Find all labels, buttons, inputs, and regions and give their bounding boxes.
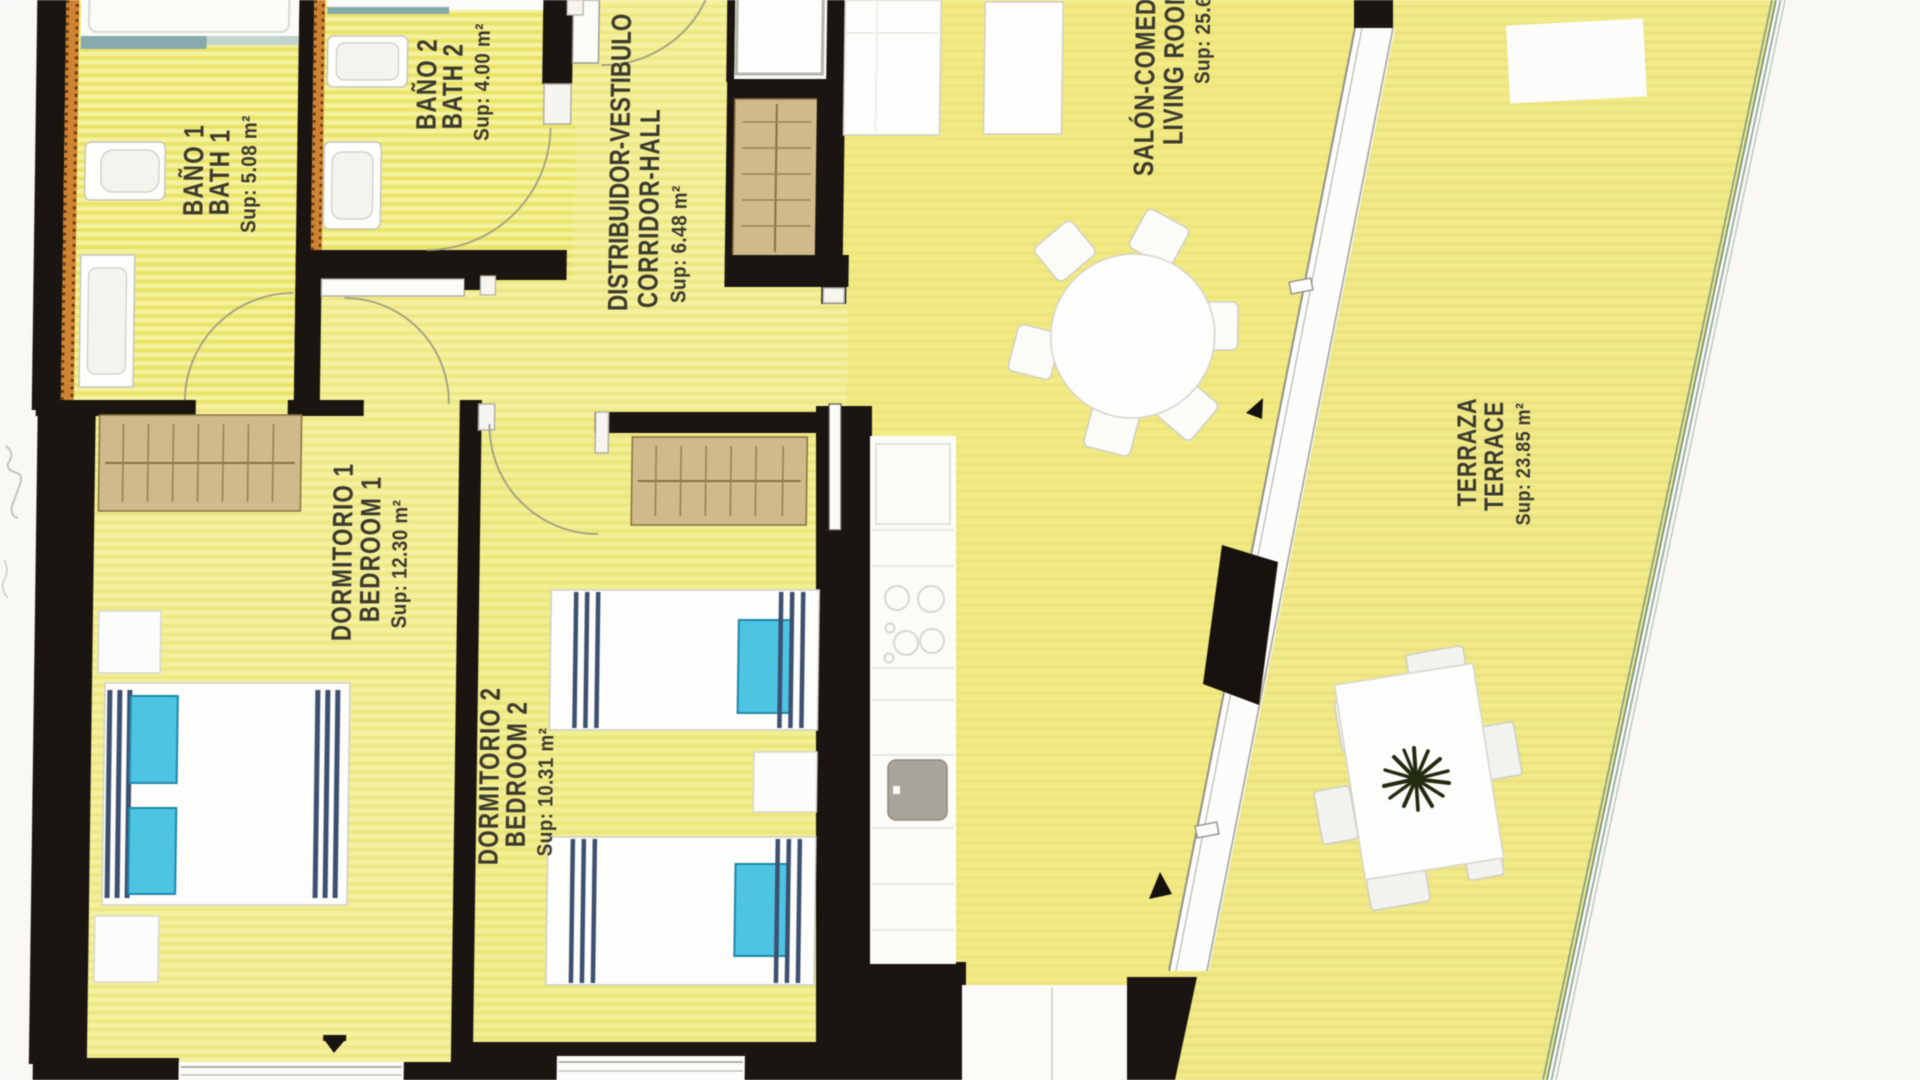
svg-text:BEDROOM 2: BEDROOM 2	[500, 701, 533, 847]
svg-text:Sup: 12.30 m²: Sup: 12.30 m²	[388, 500, 413, 629]
svg-text:BEDROOM 1: BEDROOM 1	[355, 476, 388, 622]
svg-text:Sup: 6.48 m²: Sup: 6.48 m²	[667, 185, 692, 303]
svg-text:LIVING ROOM: LIVING ROOM	[1158, 0, 1191, 145]
svg-text:Sup: 25.65 m²: Sup: 25.65 m²	[1191, 0, 1216, 84]
svg-text:TERRACE: TERRACE	[1480, 401, 1510, 511]
svg-text:TERRAZA: TERRAZA	[1453, 398, 1483, 507]
svg-text:Sup: 10.31 m²: Sup: 10.31 m²	[534, 728, 559, 857]
svg-text:SALÓN-COMEDOR: SALÓN-COMEDOR	[1126, 0, 1162, 176]
svg-text:BATH 2: BATH 2	[437, 43, 469, 129]
svg-text:Sup: 5.08 m²: Sup: 5.08 m²	[237, 115, 262, 233]
svg-text:Sup: 4.00 m²: Sup: 4.00 m²	[471, 23, 496, 141]
svg-text:Sup: 23.85 m²: Sup: 23.85 m²	[1513, 403, 1535, 526]
svg-text:CORRIDOR-HALL: CORRIDOR-HALL	[633, 109, 667, 308]
svg-text:BATH 1: BATH 1	[204, 129, 236, 215]
